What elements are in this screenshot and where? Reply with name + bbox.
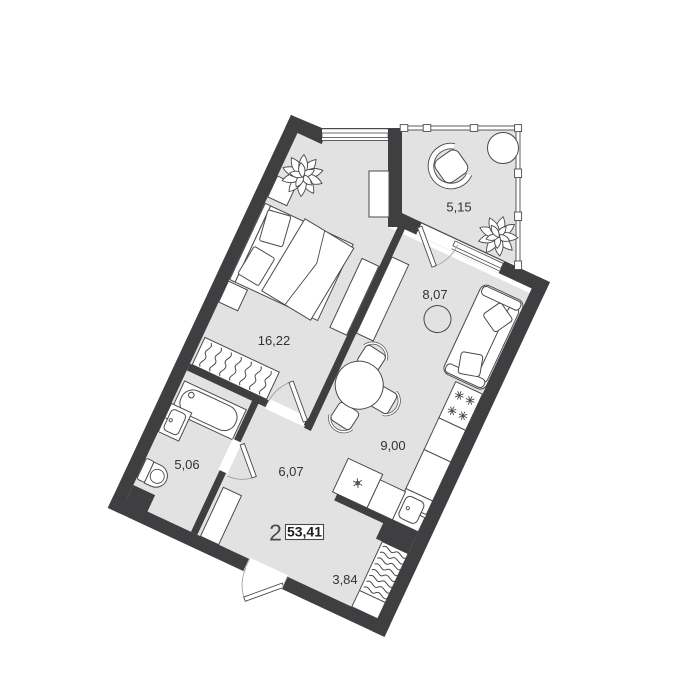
svg-text:5,15: 5,15 bbox=[446, 200, 471, 215]
svg-text:9,00: 9,00 bbox=[380, 438, 405, 453]
svg-text:8,07: 8,07 bbox=[422, 287, 447, 302]
svg-text:5,06: 5,06 bbox=[174, 457, 199, 472]
svg-text:6,07: 6,07 bbox=[278, 464, 303, 479]
svg-text:3,84: 3,84 bbox=[332, 572, 357, 587]
svg-text:16,22: 16,22 bbox=[258, 333, 291, 348]
svg-text:53,41: 53,41 bbox=[287, 523, 322, 539]
svg-text:2: 2 bbox=[269, 520, 282, 546]
